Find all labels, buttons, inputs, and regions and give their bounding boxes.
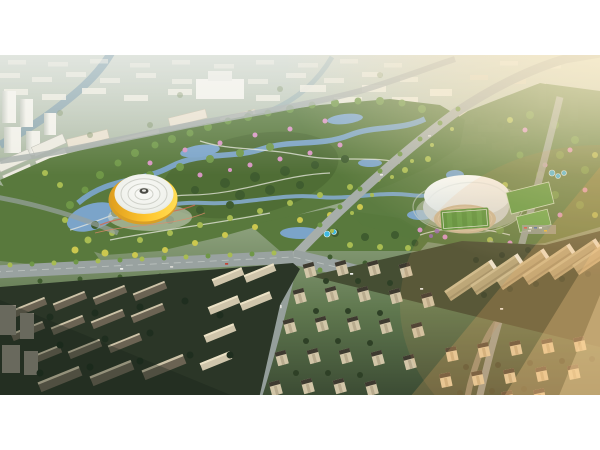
arena-dome-roof (115, 174, 174, 214)
aerial-render-svg: aerial-architectural-rendering (0, 55, 600, 395)
screenshot-canvas: aerial-architectural-rendering (0, 0, 600, 450)
aerial-render-image: aerial-architectural-rendering (0, 55, 600, 395)
letterbox-bottom (0, 395, 600, 450)
letterbox-top (0, 0, 600, 55)
